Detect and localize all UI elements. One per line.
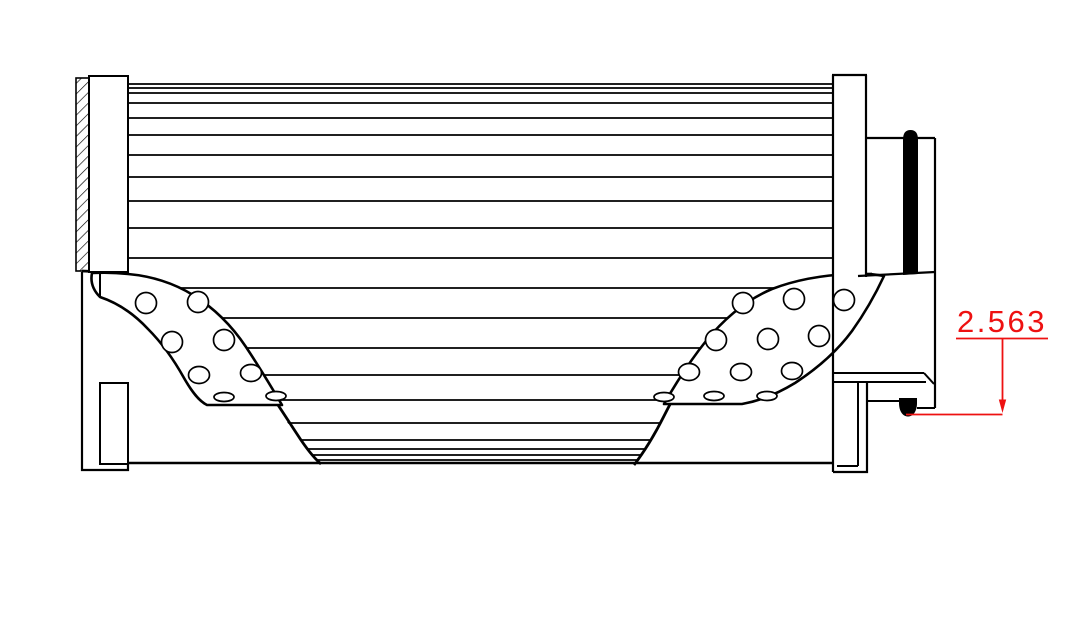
perforation-hole: [782, 363, 803, 380]
perforation-hole: [679, 364, 700, 381]
left-end-cap: [89, 76, 128, 272]
left-hatch-endplate: [76, 76, 128, 272]
perforation-hole: [188, 292, 209, 313]
dimension-text: 2.563: [957, 304, 1047, 339]
perforation-hole: [758, 329, 779, 350]
left-slot: [100, 383, 128, 464]
perforation-hole: [704, 392, 724, 401]
perforation-hole: [809, 326, 830, 347]
perforation-hole: [733, 293, 754, 314]
perforation-hole: [189, 367, 210, 384]
perforation-hole: [162, 332, 183, 353]
perforation-hole: [757, 392, 777, 401]
perforation-hole: [834, 290, 855, 311]
perforation-hole: [731, 364, 752, 381]
hatch-strip: [76, 78, 89, 271]
right-end-cap-fill: [834, 75, 866, 277]
perforation-hole: [214, 393, 234, 402]
filter-element-drawing: 2.563: [0, 0, 1074, 621]
perforation-hole: [136, 293, 157, 314]
perforation-hole: [266, 392, 286, 401]
perforation-hole: [214, 330, 235, 351]
perforation-hole: [654, 393, 674, 402]
seal-bar: [903, 130, 918, 275]
drawing-canvas: 2.563: [0, 0, 1074, 621]
perforation-hole: [241, 365, 262, 382]
perforation-hole: [784, 289, 805, 310]
perforation-hole: [706, 330, 727, 351]
